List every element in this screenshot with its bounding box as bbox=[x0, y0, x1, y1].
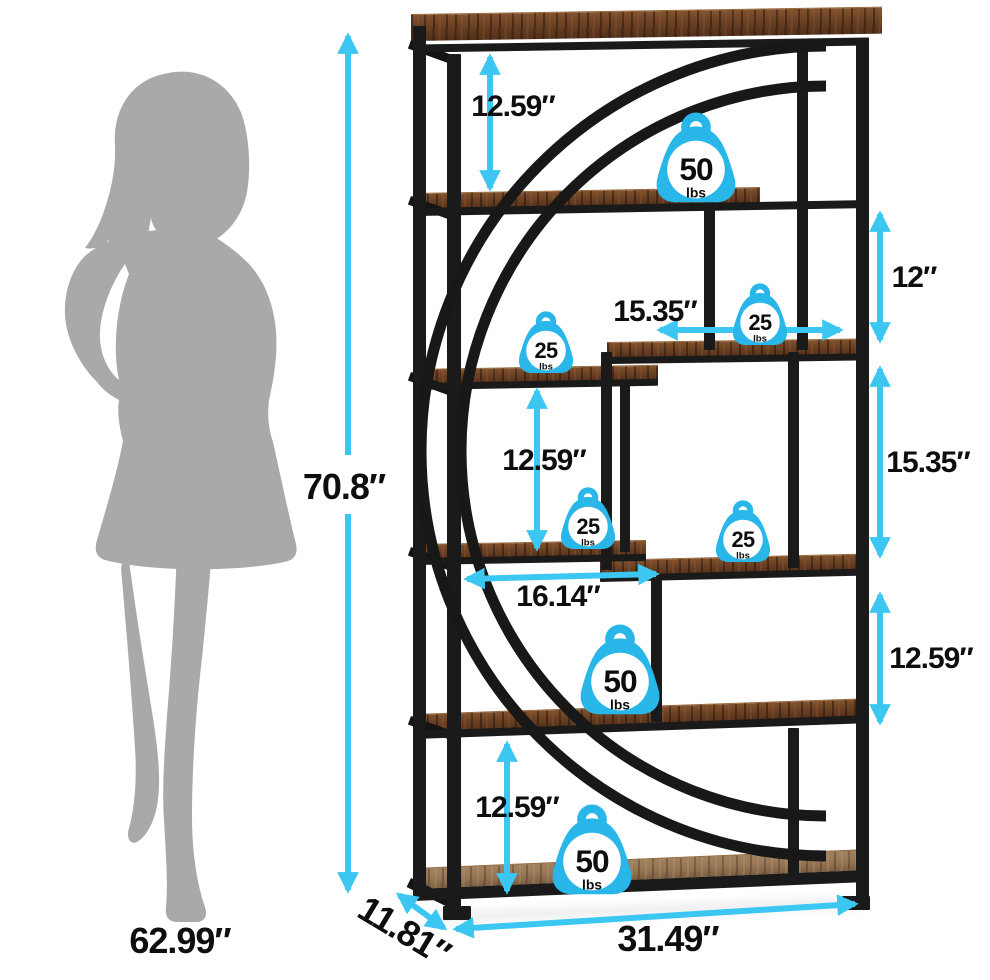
weight-badge-middle-right: 25 lbs bbox=[710, 500, 776, 566]
front-left-foot bbox=[443, 906, 471, 920]
weight-icon: 25 lbs bbox=[710, 500, 776, 566]
weight-icon: 25 lbs bbox=[555, 487, 621, 553]
weight-badge-upper-left: 25 lbs bbox=[513, 311, 579, 377]
weight-icon: 25 lbs bbox=[513, 311, 579, 377]
silhouette-head-hair bbox=[85, 72, 249, 264]
divider-tier2-right bbox=[704, 198, 715, 350]
weight-icon: 25 lbs bbox=[727, 283, 793, 349]
weight-unit: lbs bbox=[581, 538, 595, 549]
weight-badge-top-shelf: 50 lbs bbox=[648, 112, 744, 208]
weight-value: 50 bbox=[575, 843, 609, 879]
weight-badge-lower-shelf: 50 lbs bbox=[572, 624, 668, 720]
weight-value: 25 bbox=[749, 310, 772, 335]
woman-silhouette bbox=[0, 0, 990, 980]
frame-back-left-post bbox=[413, 26, 426, 890]
divider-top-right bbox=[797, 46, 808, 350]
silhouette-back-leg bbox=[121, 545, 159, 843]
dimension-label-top-shelf-gap: 12.59″ bbox=[471, 90, 554, 124]
product-dimension-diagram: 50 lbs 25 lbs 25 lbs 25 lbs bbox=[0, 0, 990, 980]
weight-value: 25 bbox=[732, 527, 755, 552]
dimension-label-right-top-gap: 12″ bbox=[892, 261, 937, 295]
weight-icon: 50 lbs bbox=[648, 112, 744, 208]
weight-value: 50 bbox=[603, 663, 637, 699]
weight-badge-middle-left: 25 lbs bbox=[555, 487, 621, 553]
weight-unit: lbs bbox=[686, 184, 706, 200]
divider-upper-left-inner bbox=[620, 384, 630, 552]
silhouette-body bbox=[65, 230, 297, 569]
right-foot bbox=[842, 896, 870, 910]
weight-icon: 50 lbs bbox=[572, 624, 668, 720]
dimension-label-right-mid-gap: 15.35″ bbox=[886, 446, 969, 480]
weight-value: 25 bbox=[577, 514, 600, 539]
weight-value: 50 bbox=[679, 151, 713, 187]
dimension-label-mid-shelf-width: 16.14″ bbox=[516, 580, 599, 614]
dimension-label-overall-width: 31.49″ bbox=[617, 918, 718, 960]
weight-unit: lbs bbox=[582, 876, 602, 892]
shelf-top-slab bbox=[411, 7, 882, 41]
weight-badge-upper-right: 25 lbs bbox=[727, 283, 793, 349]
weight-unit: lbs bbox=[539, 362, 553, 373]
dimension-label-bottom-gap: 12.59″ bbox=[475, 791, 558, 825]
frame-front-left-post bbox=[447, 54, 461, 918]
divider-mid-right-wall bbox=[788, 352, 799, 568]
weight-unit: lbs bbox=[753, 334, 767, 345]
weight-unit: lbs bbox=[736, 551, 750, 562]
arc-frame bbox=[0, 0, 990, 980]
dimension-label-right-lower-gap: 12.59″ bbox=[889, 642, 972, 676]
dimension-label-left-mid-gap: 12.59″ bbox=[502, 444, 585, 478]
frame-right-post bbox=[856, 44, 869, 908]
divider-bottom-right bbox=[788, 728, 799, 882]
dimension-label-right-shelf-width: 15.35″ bbox=[613, 295, 696, 329]
weight-value: 25 bbox=[535, 338, 558, 363]
dimension-label-overall-height: 70.8″ bbox=[303, 466, 385, 508]
dimension-label-person-height: 62.99″ bbox=[129, 920, 230, 962]
dimension-arrows bbox=[0, 0, 990, 980]
silhouette-front-leg bbox=[163, 547, 212, 922]
weight-unit: lbs bbox=[610, 696, 630, 712]
